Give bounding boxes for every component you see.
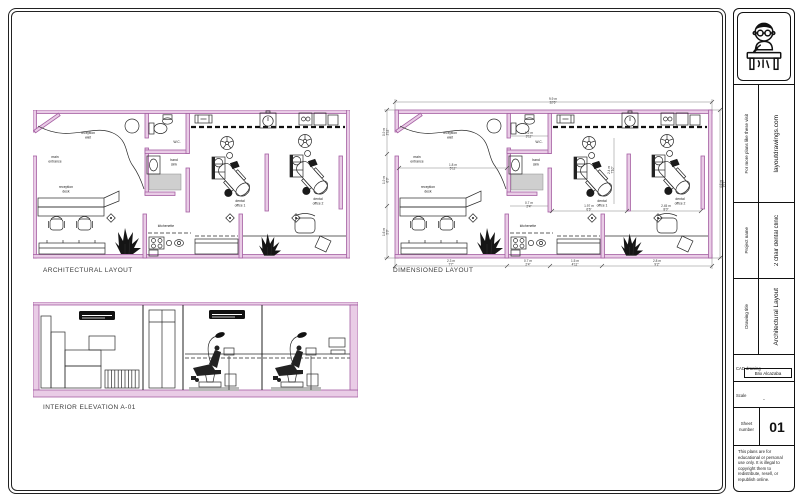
dimension-label: 2.45 m8'0": [661, 204, 671, 212]
cad-drawing-value: Brix Alcazaba: [744, 368, 792, 378]
dimension-label: 1.97 m6'6": [584, 204, 594, 212]
sheet-number-label: Sheet number: [734, 408, 760, 445]
dimension-label: 4.6 m15'1": [719, 180, 725, 188]
tall-cabinet-elevation: [149, 310, 175, 388]
dimensioned-layout-plan: 9.9 m32'6"0.9 m2'11"1.9 m6'3"1.6 m5'3"4.…: [373, 92, 725, 274]
drawing-title-label: Drawing title: [744, 304, 749, 329]
wall-shelf: [329, 338, 345, 354]
sheet-number-section: Sheet number 01: [734, 408, 794, 446]
dimension-label: 1.8 m5'11": [449, 163, 457, 171]
dimension-label: 1.9 m6'3": [382, 176, 390, 184]
dimension-label: 1.2 m3'11": [525, 131, 533, 139]
dimension-label: 1.5 m4'11": [571, 259, 579, 267]
promo-label: For more plans like these visit: [744, 114, 749, 174]
logo-box: [734, 9, 794, 85]
dimension-label: 9.9 m32'6": [549, 97, 557, 105]
dimension-label: 0.7 m2'4": [525, 201, 533, 209]
cad-drawing-section: CAD drawing Brix Alcazaba: [734, 355, 794, 382]
architectural-layout-plan: receptionwait mainentrance W.C. handsink…: [33, 110, 350, 262]
drawing-title-value: Architectural Layout: [773, 288, 780, 345]
dimension-label: 2.4 m7'10": [607, 166, 615, 174]
disclaimer-text: This plans are for educational or person…: [734, 446, 794, 491]
interior-elevation-title: INTERIOR ELEVATION A-01: [43, 404, 136, 411]
dimension-lines: [384, 99, 723, 269]
dimension-label: 1.6 m5'3": [382, 228, 390, 236]
promo-site: layoutdrawings.com: [773, 115, 780, 172]
scale-section: Scale -: [734, 382, 794, 408]
drawing-title-section: Drawing title Architectural Layout: [734, 279, 794, 355]
project-name-value: 2 chair dental clinic: [774, 215, 780, 266]
dimension-label: 2.3 m7'7": [447, 259, 455, 267]
cad-sheet: { "colors": { "wall_fill": "#e9cce6", "w…: [0, 0, 800, 501]
dimension-label: 0.7 m2'4": [524, 259, 532, 267]
dimensioned-layout-title: DIMENSIONED LAYOUT: [393, 267, 473, 274]
sheet-number-value: 01: [760, 408, 794, 445]
architectural-layout-title: ARCHITECTURAL LAYOUT: [43, 267, 133, 274]
reception-elevation: [41, 316, 139, 388]
dimension-labels: 9.9 m32'6"0.9 m2'11"1.9 m6'3"1.6 m5'3"4.…: [382, 97, 725, 267]
project-name-label: Project name: [744, 227, 749, 254]
dimension-label: 2.8 m9'2": [653, 259, 661, 267]
interior-elevation-drawing: [33, 302, 358, 400]
promo-section: For more plans like these visit layoutdr…: [734, 85, 794, 203]
person-at-desk-icon: [738, 16, 790, 78]
scale-value: -: [734, 397, 794, 403]
title-block: For more plans like these visit layoutdr…: [733, 8, 795, 492]
dimension-label: 0.9 m2'11": [382, 128, 390, 136]
slatted-panel: [105, 370, 139, 388]
project-section: Project name 2 chair dental clinic: [734, 203, 794, 279]
